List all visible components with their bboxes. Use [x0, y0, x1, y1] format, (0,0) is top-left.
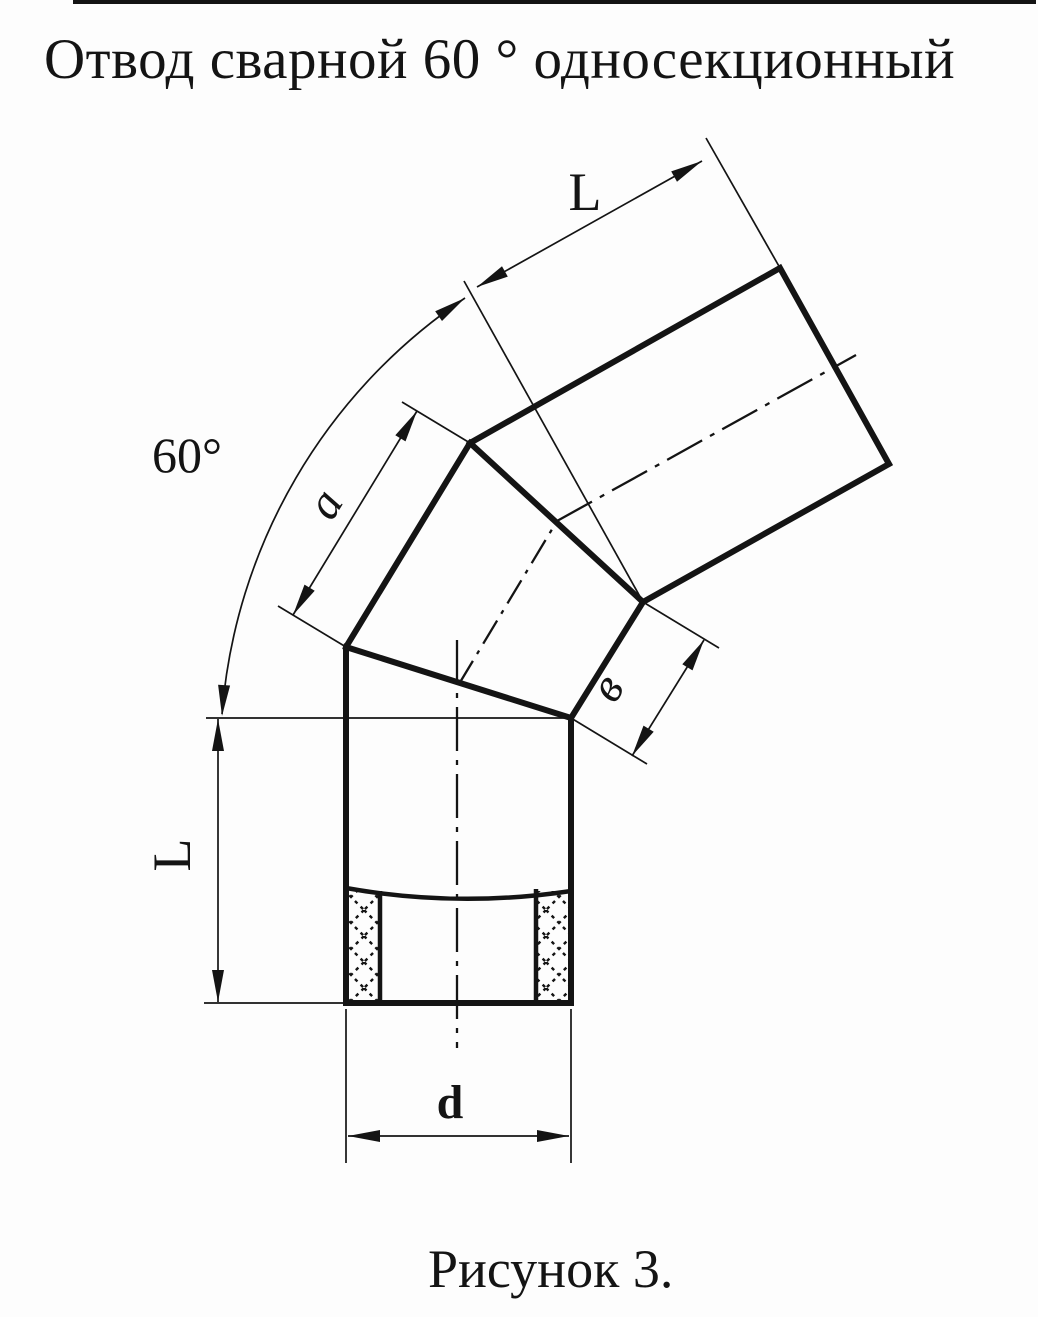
middle-section-centerline [459, 521, 557, 684]
extension-line [706, 138, 780, 268]
dimension-a: a [278, 402, 470, 647]
pipe-outline [346, 268, 889, 1003]
dimension-label-d: d [437, 1076, 464, 1129]
extension-line [571, 718, 647, 764]
arrowhead [293, 585, 315, 615]
arrowhead [212, 970, 224, 1002]
dimension-label-b: в [579, 665, 635, 711]
dimension-line [293, 411, 417, 615]
arrowhead [395, 411, 417, 441]
extension-line [464, 281, 643, 602]
drawing-title: Отвод сварной 60 ° односекционный [44, 28, 955, 91]
scanned-drawing-page: Отвод сварной 60 ° односекционный L [0, 0, 1038, 1317]
arrowhead [632, 726, 654, 756]
elbow-technical-drawing: Отвод сварной 60 ° односекционный L [0, 0, 1038, 1317]
weld-seam-2 [470, 443, 643, 602]
figure-caption: Рисунок 3. [428, 1239, 673, 1299]
right-wall-hatch [537, 891, 569, 1001]
dimension-L-upper: L [464, 138, 780, 602]
arrowhead [477, 266, 508, 287]
weld-seam-1 [346, 647, 571, 718]
arrowhead [682, 640, 704, 670]
arrowhead [537, 1130, 569, 1142]
elbow-body-outline [346, 268, 889, 1003]
dimension-label-L-upper: L [569, 162, 602, 222]
arrowhead [435, 298, 465, 321]
scan-artifact-top-edge [73, 0, 1036, 4]
dimension-b: в [571, 602, 719, 764]
extension-line [643, 602, 719, 648]
arrowhead [348, 1130, 380, 1142]
upper-pipe-centerline [557, 355, 856, 521]
arrowhead [671, 161, 702, 182]
extension-line [278, 606, 346, 647]
dimension-d: d [346, 1009, 571, 1163]
arrowhead [218, 685, 230, 716]
pipe-wall-sections [346, 888, 571, 1001]
dimension-label-L-lower: L [142, 839, 202, 872]
dimension-label-a: a [296, 480, 354, 528]
arrowhead [212, 719, 224, 751]
dimension-label-angle: 60° [152, 427, 222, 483]
left-wall-hatch [347, 891, 379, 1001]
